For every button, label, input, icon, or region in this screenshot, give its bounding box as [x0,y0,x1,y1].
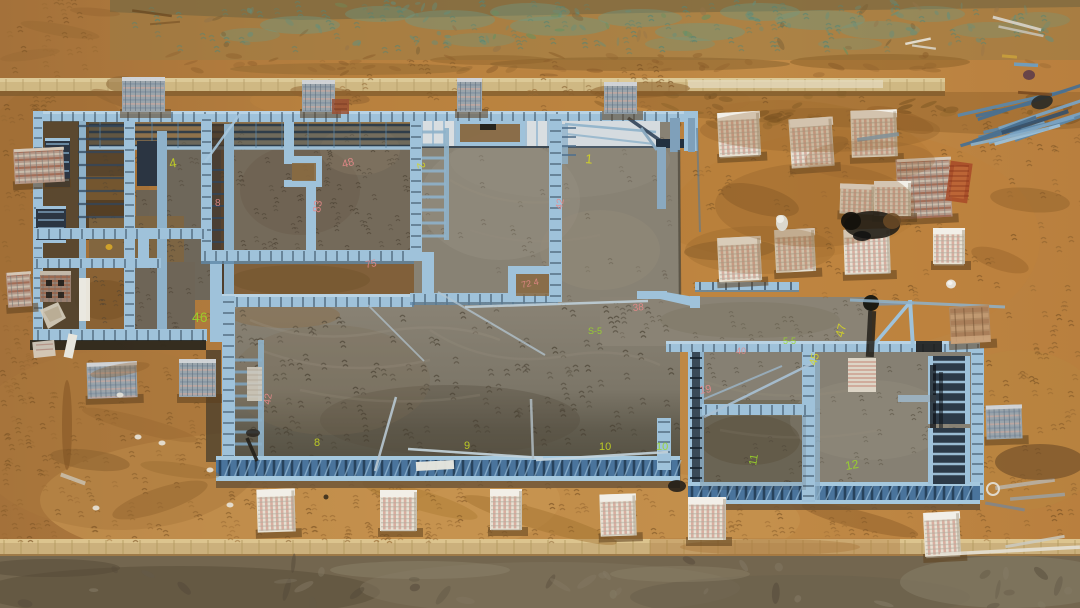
svg-text:9: 9 [464,440,470,452]
svg-text:11: 11 [747,453,761,466]
svg-text:8: 8 [314,437,320,449]
svg-text:83: 83 [311,199,325,213]
svg-text:12: 12 [844,457,860,473]
svg-text:8: 8 [215,198,221,209]
svg-text:38: 38 [632,302,644,314]
svg-text:40: 40 [736,346,746,356]
svg-text:46: 46 [192,309,208,325]
svg-text:19: 19 [698,383,712,397]
svg-text:10: 10 [599,441,611,453]
svg-text:10: 10 [656,441,668,453]
svg-text:1: 1 [585,151,594,167]
svg-text:S-5: S-5 [588,326,602,336]
svg-text:5-5: 5-5 [783,336,796,346]
